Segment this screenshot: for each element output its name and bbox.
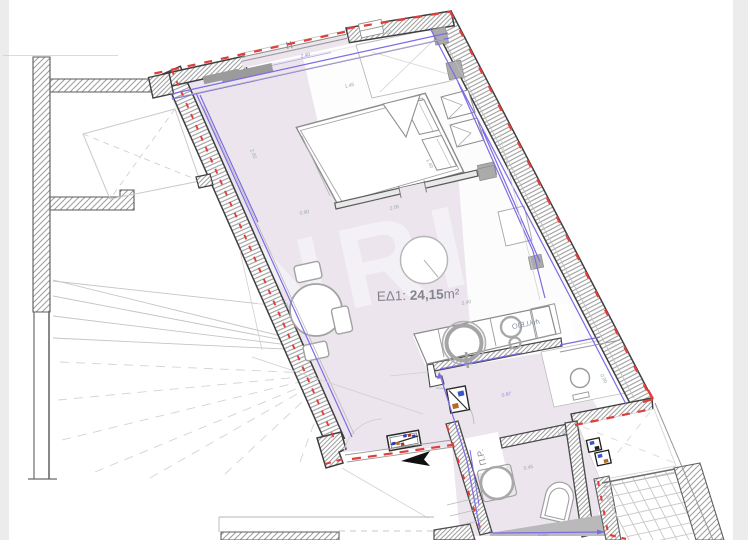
- svg-text:EΔ1: 24,15m²: EΔ1: 24,15m²: [377, 286, 461, 304]
- svg-text:5.80: 5.80: [538, 532, 548, 538]
